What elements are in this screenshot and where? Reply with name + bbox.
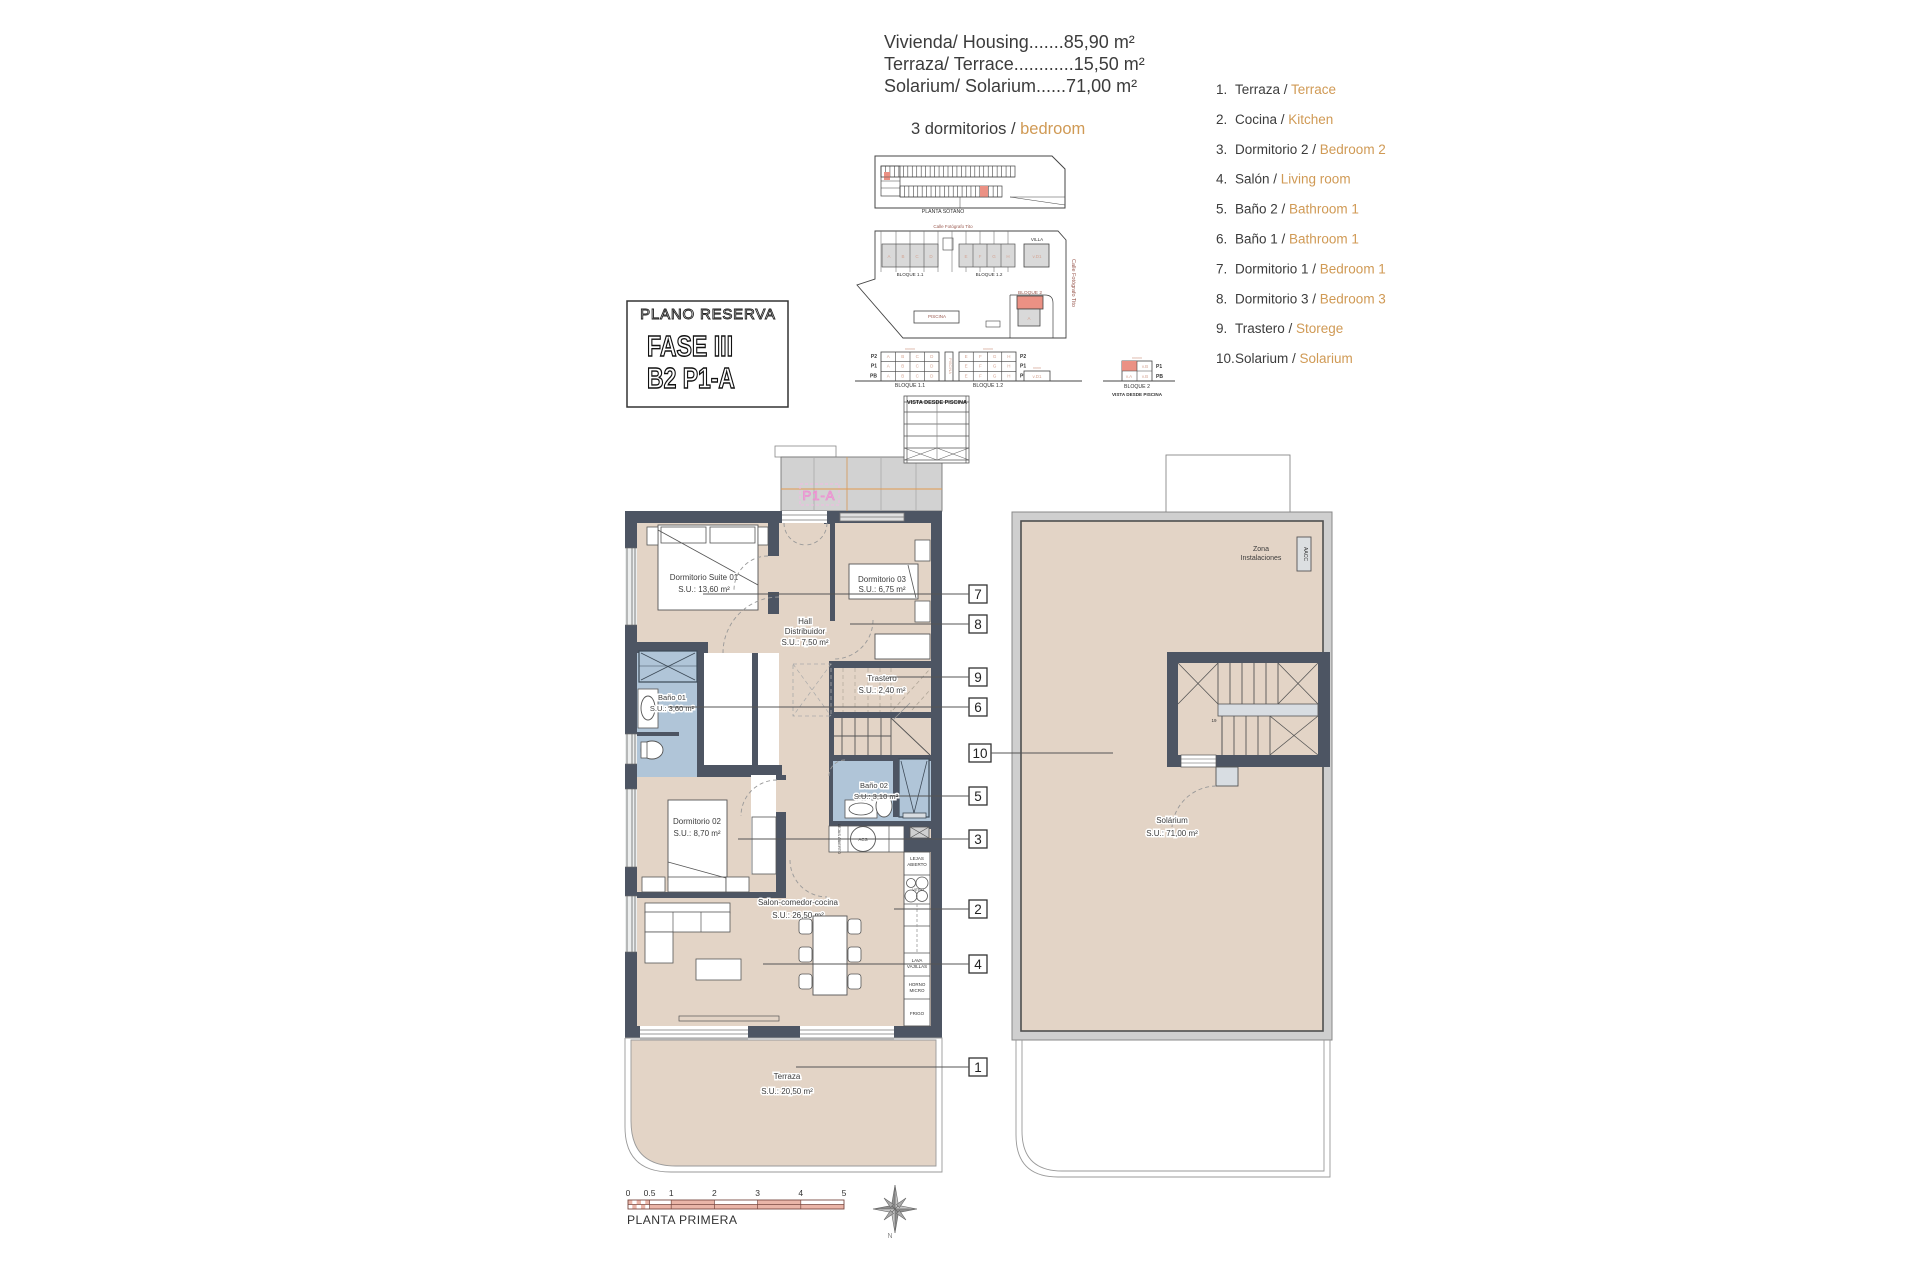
svg-text:0: 0: [626, 1188, 631, 1198]
svg-text:4: 4: [798, 1188, 803, 1198]
svg-text:E: E: [965, 364, 968, 369]
svg-text:E: E: [965, 373, 968, 378]
svg-text:S.U.: 7,50 m²: S.U.: 7,50 m²: [781, 638, 828, 647]
svg-text:A: A: [887, 254, 890, 259]
svg-text:BLOQUE 1.1: BLOQUE 1.1: [897, 272, 924, 277]
svg-text:A: A: [1027, 316, 1030, 321]
svg-text:F: F: [979, 373, 982, 378]
svg-text:PISCINA: PISCINA: [928, 314, 946, 319]
svg-text:Terraza: Terraza: [774, 1072, 801, 1081]
svg-text:xxxxx: xxxxx: [1132, 355, 1142, 360]
svg-text:3 dormitorios / bedroom: 3 dormitorios / bedroom: [911, 120, 1085, 138]
svg-text:ACS: ACS: [858, 837, 867, 842]
svg-text:1: 1: [669, 1188, 674, 1198]
svg-text:Calle Fotógrafo Tito: Calle Fotógrafo Tito: [1070, 259, 1076, 307]
svg-text:5: 5: [974, 789, 982, 804]
svg-text:B: B: [901, 254, 904, 259]
svg-text:Dormitorio 3 / Bedroom 3: Dormitorio 3 / Bedroom 3: [1235, 291, 1386, 306]
svg-text:6: 6: [974, 700, 982, 715]
svg-text:Baño 02: Baño 02: [860, 781, 888, 790]
svg-text:3: 3: [755, 1188, 760, 1198]
svg-text:8: 8: [974, 617, 982, 632]
svg-text:xxxx: xxxx: [1033, 365, 1041, 370]
svg-text:Dormitorio 03: Dormitorio 03: [858, 575, 907, 584]
svg-text:v.A: v.A: [1126, 374, 1132, 379]
svg-text:PISCINA: PISCINA: [948, 358, 953, 374]
svg-text:FRIGO: FRIGO: [910, 1011, 925, 1016]
svg-text:P1: P1: [871, 364, 877, 370]
svg-text:v.B: v.B: [1142, 364, 1148, 369]
svg-text:VITRO: VITRO: [912, 888, 924, 892]
svg-text:7.: 7.: [1216, 261, 1227, 276]
svg-text:VAJILLAS: VAJILLAS: [907, 964, 927, 969]
svg-text:10.: 10.: [1216, 351, 1235, 366]
svg-text:BLOQUE 1.2: BLOQUE 1.2: [973, 383, 1003, 389]
svg-text:LEJAS: LEJAS: [910, 856, 924, 861]
svg-text:0.5: 0.5: [644, 1188, 656, 1198]
svg-text:Salon-comedor-cocina: Salon-comedor-cocina: [758, 898, 839, 907]
svg-text:HORNO: HORNO: [909, 982, 926, 987]
svg-text:S.U.: 8,70 m²: S.U.: 8,70 m²: [673, 829, 720, 838]
svg-text:4.: 4.: [1216, 172, 1227, 187]
svg-text:2: 2: [712, 1188, 717, 1198]
svg-text:G: G: [993, 354, 997, 359]
svg-text:Solárium: Solárium: [1156, 816, 1188, 825]
svg-text:9.: 9.: [1216, 321, 1227, 336]
svg-text:Dormitorio 2 / Bedroom 2: Dormitorio 2 / Bedroom 2: [1235, 142, 1386, 157]
svg-text:Baño 01: Baño 01: [658, 693, 686, 702]
svg-text:10: 10: [972, 746, 987, 761]
svg-text:S.U.: 71,00 m²: S.U.: 71,00 m²: [1146, 829, 1198, 838]
svg-text:Solarium / Solarium: Solarium / Solarium: [1235, 351, 1353, 366]
svg-text:9: 9: [974, 670, 982, 685]
svg-text:A: A: [887, 354, 890, 359]
svg-text:ABIERTO: ABIERTO: [907, 862, 927, 867]
svg-text:S.U.: 6,75 m²: S.U.: 6,75 m²: [858, 585, 905, 594]
svg-text:BLOQUE 2: BLOQUE 2: [1124, 384, 1150, 390]
svg-text:1: 1: [974, 1060, 982, 1075]
svg-text:VILLA: VILLA: [1031, 237, 1043, 242]
svg-text:1.: 1.: [1216, 82, 1227, 97]
svg-text:B2 P1-A: B2 P1-A: [647, 363, 735, 395]
svg-text:G: G: [993, 373, 997, 378]
svg-text:Trastero / Storege: Trastero / Storege: [1235, 321, 1343, 336]
svg-text:G: G: [992, 254, 996, 259]
svg-text:F: F: [979, 364, 982, 369]
svg-text:Dormitorio 02: Dormitorio 02: [673, 817, 722, 826]
svg-text:v.D1: v.D1: [1033, 254, 1042, 259]
svg-text:PLANO RESERVA: PLANO RESERVA: [640, 306, 776, 323]
svg-text:S.U.: 3,10 m²: S.U.: 3,10 m²: [854, 792, 899, 801]
svg-text:Distribuidor: Distribuidor: [785, 627, 826, 636]
svg-text:xxxxx: xxxxx: [905, 346, 915, 351]
svg-text:LAVA: LAVA: [912, 958, 923, 963]
svg-text:VISTA DESDE PISCINA: VISTA DESDE PISCINA: [907, 400, 967, 406]
svg-text:3: 3: [974, 832, 982, 847]
svg-text:E: E: [964, 254, 967, 259]
svg-text:PB: PB: [870, 373, 877, 379]
svg-text:VISTA DESDE PISCINA: VISTA DESDE PISCINA: [1112, 392, 1163, 397]
svg-text:Salón / Living room: Salón / Living room: [1235, 172, 1351, 187]
svg-text:Hall: Hall: [798, 617, 812, 626]
svg-text:BLOQUE 2: BLOQUE 2: [1018, 290, 1042, 296]
svg-text:BLOQUE 1.2: BLOQUE 1.2: [976, 272, 1003, 277]
svg-text:P2: P2: [1020, 354, 1026, 360]
svg-text:H: H: [1007, 354, 1010, 359]
svg-text:F: F: [979, 354, 982, 359]
svg-text:B: B: [901, 373, 904, 378]
svg-text:Instalaciones: Instalaciones: [1241, 555, 1282, 562]
svg-text:AACC: AACC: [1302, 547, 1308, 561]
svg-text:H: H: [1007, 364, 1010, 369]
svg-text:5: 5: [842, 1188, 847, 1198]
svg-text:P1-A: P1-A: [803, 488, 836, 503]
svg-text:Dormitorio Suite 01: Dormitorio Suite 01: [670, 573, 739, 582]
svg-text:PB: PB: [1156, 374, 1163, 380]
svg-text:Zona: Zona: [1253, 546, 1269, 553]
svg-text:19: 19: [1211, 718, 1217, 723]
svg-text:P2: P2: [871, 354, 877, 360]
svg-text:Solarium/ Solarium......71,00: Solarium/ Solarium......71,00 m²: [884, 76, 1137, 96]
svg-text:S.U.: 2,40 m²: S.U.: 2,40 m²: [858, 686, 905, 695]
svg-text:v.B: v.B: [1142, 374, 1148, 379]
svg-text:2.: 2.: [1216, 112, 1227, 127]
svg-text:PLANTA PRIMERA: PLANTA PRIMERA: [627, 1213, 738, 1227]
svg-text:F: F: [979, 254, 982, 259]
svg-text:Baño 1 / Bathroom 1: Baño 1 / Bathroom 1: [1235, 232, 1359, 247]
svg-text:A: A: [887, 364, 890, 369]
svg-text:Calle Fotógrafo Tito: Calle Fotógrafo Tito: [933, 224, 973, 229]
svg-text:E: E: [965, 354, 968, 359]
svg-text:S.U.: 20,50 m²: S.U.: 20,50 m²: [761, 1087, 813, 1096]
svg-text:Cocina / Kitchen: Cocina / Kitchen: [1235, 112, 1333, 127]
svg-text:Trastero: Trastero: [867, 674, 897, 683]
svg-text:Vivienda/ Housing.......85,90: Vivienda/ Housing.......85,90 m²: [884, 32, 1135, 52]
svg-text:PLANTA SÓTANO: PLANTA SÓTANO: [922, 208, 964, 215]
svg-text:3.: 3.: [1216, 142, 1227, 157]
svg-text:B: B: [901, 354, 904, 359]
svg-text:5.: 5.: [1216, 202, 1227, 217]
svg-text:xxxxx: xxxxx: [983, 346, 993, 351]
svg-text:H: H: [1007, 373, 1010, 378]
svg-text:S.U.: 3,60 m²: S.U.: 3,60 m²: [650, 704, 695, 713]
svg-text:8.: 8.: [1216, 291, 1227, 306]
svg-text:Baño 2 / Bathroom 1: Baño 2 / Bathroom 1: [1235, 202, 1359, 217]
svg-text:BLOQUE 1.1: BLOQUE 1.1: [895, 383, 925, 389]
svg-text:P1: P1: [1156, 364, 1162, 370]
svg-text:H: H: [1006, 254, 1009, 259]
svg-text:B: B: [901, 364, 904, 369]
svg-text:7: 7: [974, 587, 982, 602]
svg-text:6.: 6.: [1216, 232, 1227, 247]
svg-text:N: N: [887, 1233, 892, 1240]
svg-text:Terraza / Terrace: Terraza / Terrace: [1235, 82, 1336, 97]
svg-text:MICRO: MICRO: [910, 988, 925, 993]
svg-text:2: 2: [974, 902, 982, 917]
svg-text:Dormitorio 1 / Bedroom 1: Dormitorio 1 / Bedroom 1: [1235, 261, 1386, 276]
svg-text:Terraza/ Terrace............15: Terraza/ Terrace............15,50 m²: [884, 54, 1145, 74]
svg-text:G: G: [993, 364, 997, 369]
svg-text:S.U.: 13,60 m²: S.U.: 13,60 m²: [678, 585, 730, 594]
svg-text:4: 4: [974, 957, 982, 972]
svg-text:v.D1: v.D1: [1033, 374, 1042, 379]
svg-text:P1: P1: [1020, 364, 1026, 370]
svg-text:A: A: [887, 373, 890, 378]
svg-text:FASE III: FASE III: [647, 331, 733, 363]
